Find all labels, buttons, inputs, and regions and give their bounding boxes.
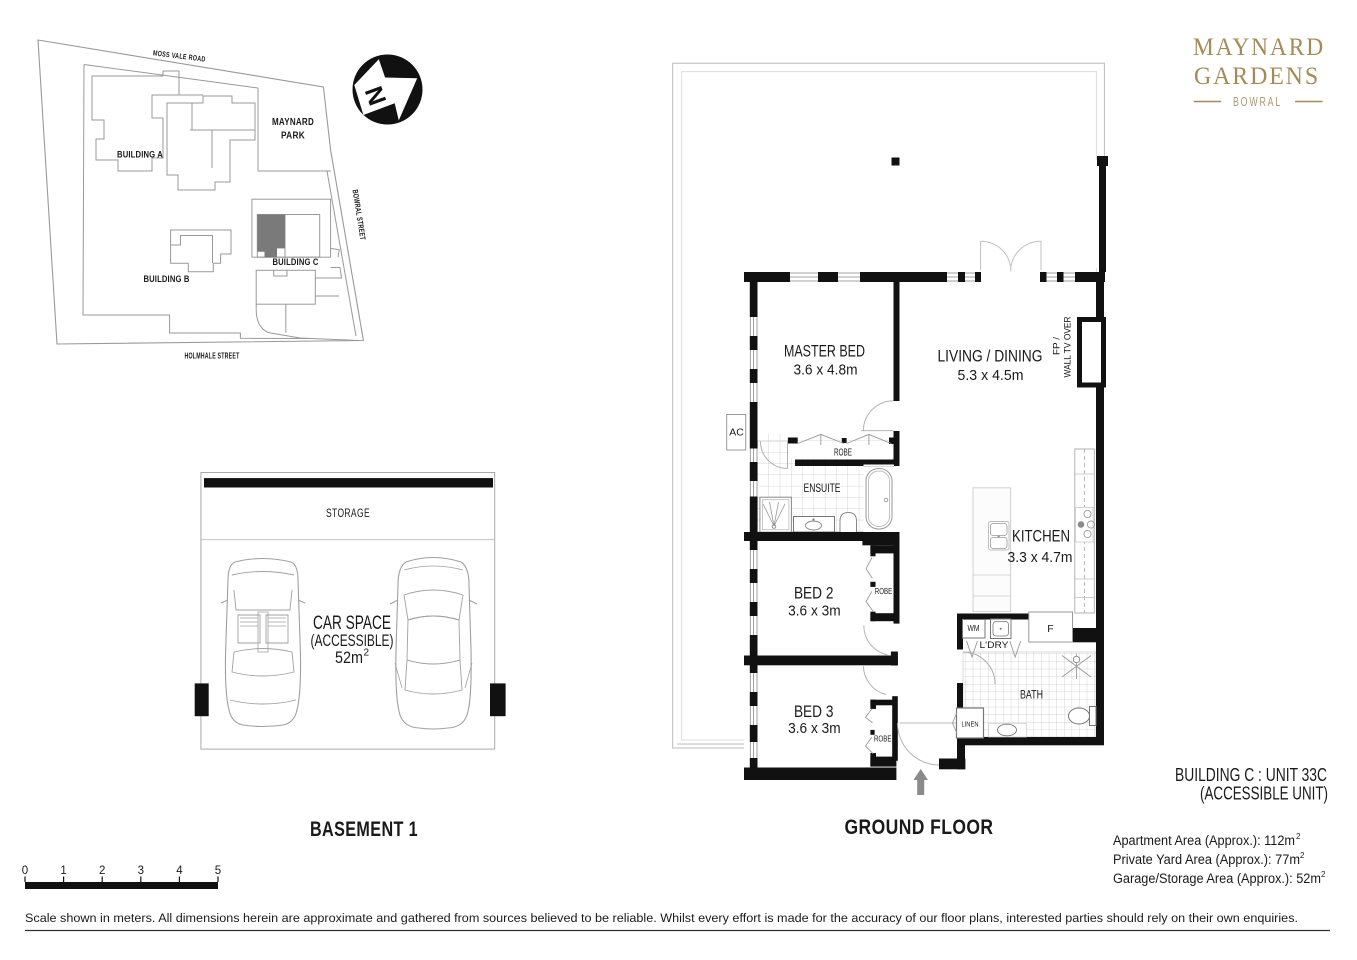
svg-text:MASTER BED: MASTER BED [784, 343, 865, 361]
svg-text:ENSUITE: ENSUITE [804, 483, 841, 495]
svg-text:2: 2 [1296, 832, 1301, 841]
svg-text:Private Yard Area (Approx.): 7: Private Yard Area (Approx.): 77m [1113, 852, 1300, 867]
svg-text:52m: 52m [335, 648, 363, 667]
svg-text:2: 2 [1321, 870, 1326, 879]
svg-text:Scale shown in meters. All dim: Scale shown in meters. All dimensions he… [25, 911, 1298, 925]
svg-text:3.6 x 4.8m: 3.6 x 4.8m [794, 363, 858, 379]
svg-text:WALL TV OVER: WALL TV OVER [1063, 317, 1073, 378]
svg-text:3: 3 [138, 865, 144, 877]
svg-text:ROBE: ROBE [875, 587, 893, 596]
svg-text:HOLMHALE STREET: HOLMHALE STREET [185, 352, 240, 361]
svg-text:BASEMENT 1: BASEMENT 1 [310, 818, 418, 841]
svg-text:BATH: BATH [1020, 690, 1043, 702]
svg-text:5: 5 [215, 865, 221, 877]
svg-text:0: 0 [22, 865, 28, 877]
svg-text:Apartment Area (Approx.): 112m: Apartment Area (Approx.): 112m [1113, 833, 1295, 848]
svg-text:AC: AC [729, 428, 744, 439]
svg-text:ROBE: ROBE [874, 735, 892, 744]
svg-text:(ACCESSIBLE UNIT): (ACCESSIBLE UNIT) [1200, 783, 1328, 804]
svg-text:ROBE: ROBE [834, 447, 852, 459]
svg-text:KITCHEN: KITCHEN [1012, 528, 1070, 546]
svg-text:2: 2 [1300, 851, 1305, 860]
svg-text:3.6 x 3m: 3.6 x 3m [788, 604, 841, 620]
svg-text:MAYNARD: MAYNARD [272, 116, 314, 128]
svg-text:GARDENS: GARDENS [1194, 63, 1320, 90]
svg-text:BUILDING B: BUILDING B [144, 274, 190, 284]
svg-text:BED 3: BED 3 [794, 703, 834, 721]
svg-text:MAYNARD: MAYNARD [1193, 34, 1325, 61]
svg-text:BOWRAL: BOWRAL [1233, 95, 1282, 109]
svg-text:3.6 x 3m: 3.6 x 3m [788, 721, 841, 737]
svg-text:PARK: PARK [281, 130, 305, 142]
svg-text:STORAGE: STORAGE [326, 506, 370, 520]
svg-text:LIVING / DINING: LIVING / DINING [938, 348, 1043, 366]
svg-text:GROUND FLOOR: GROUND FLOOR [845, 816, 994, 839]
svg-text:L'DRY: L'DRY [980, 640, 1009, 650]
svg-text:Garage/Storage Area (Approx.):: Garage/Storage Area (Approx.): 52m [1113, 871, 1321, 886]
svg-text:BED 2: BED 2 [794, 585, 834, 603]
svg-text:BUILDING A: BUILDING A [117, 150, 163, 160]
svg-text:WM: WM [968, 624, 980, 633]
svg-text:1: 1 [60, 865, 66, 877]
svg-text:4: 4 [176, 865, 183, 877]
svg-text:BUILDING C: BUILDING C [273, 257, 319, 267]
svg-text:3.3 x 4.7m: 3.3 x 4.7m [1008, 550, 1073, 566]
svg-text:LINEN: LINEN [962, 722, 979, 729]
svg-text:F: F [1047, 623, 1053, 635]
svg-text:2: 2 [99, 865, 105, 877]
svg-text:FP /: FP / [1052, 336, 1062, 355]
svg-text:2: 2 [364, 648, 370, 659]
svg-text:5.3 x 4.5m: 5.3 x 4.5m [958, 368, 1024, 384]
